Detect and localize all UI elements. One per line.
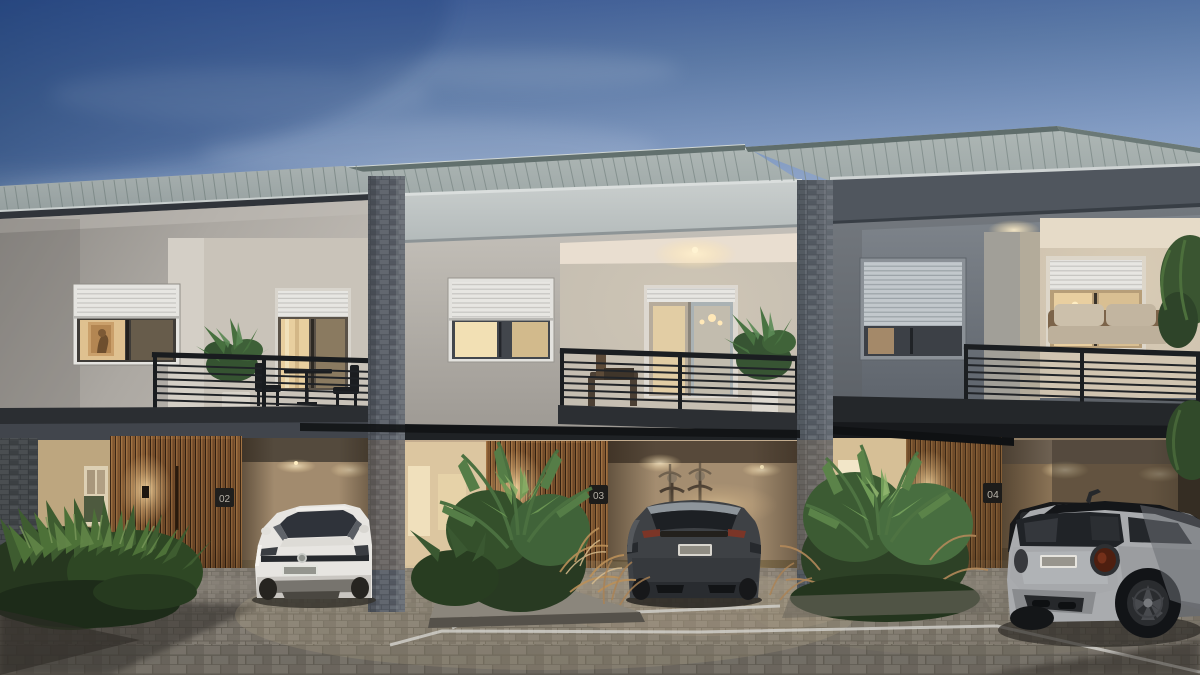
svg-text:04: 04 [987,489,999,501]
svg-text:03: 03 [593,491,605,502]
svg-text:02: 02 [219,494,231,505]
